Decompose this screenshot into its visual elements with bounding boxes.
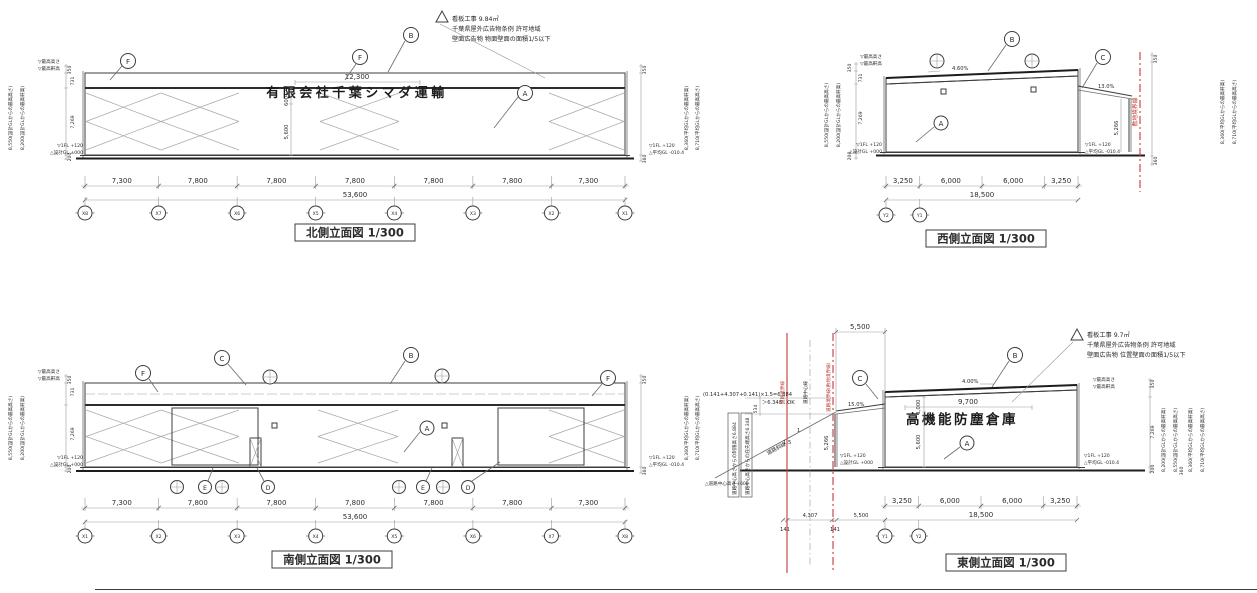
eave-height-marker: ▽最高軒高 <box>38 65 60 72</box>
callout-f1: F <box>136 366 159 393</box>
callout-c: C <box>215 351 247 386</box>
north-heave-label: 8,200(設計GLからの最高軒高) <box>19 86 26 150</box>
east-title: 東側立面図 1/300 <box>946 554 1066 571</box>
svg-text:350: 350 <box>1153 55 1159 64</box>
dim-label: 6,000 <box>1002 497 1022 505</box>
svg-text:7,269: 7,269 <box>1150 425 1156 438</box>
callout-c: C <box>1082 50 1111 89</box>
east-canopy-slope: 15.0% <box>848 402 865 408</box>
dim-label: 6,000 <box>940 497 960 505</box>
east-elevation: 9,700 高機能防塵倉庫 1,000 5,600 4.00% 15.0% 5,… <box>703 323 1206 573</box>
grid-bubble-label: X6 <box>470 534 476 540</box>
east-right-dims: 350 7,269 200 360 8,200(設計GLからの最高軒高) 8,5… <box>1148 378 1206 475</box>
west-canopy-height-dim: 5,266 <box>1114 121 1120 136</box>
svg-text:8,200(設計GLからの最高軒高): 8,200(設計GLからの最高軒高) <box>19 396 26 460</box>
south-left-dims: 8,550(設計GLからの最高高さ) 8,200(設計GLからの最高軒高) 35… <box>7 368 83 473</box>
south-door-2 <box>452 438 463 467</box>
opening-tag-icon <box>393 481 406 494</box>
svg-text:▽最高高さ: ▽最高高さ <box>860 53 882 60</box>
grid-bubble-label: X3 <box>470 211 476 217</box>
svg-text:▽最高軒高: ▽最高軒高 <box>38 375 60 382</box>
opening-tag-icon <box>171 481 184 494</box>
drawing-sheet: 12,300 有限会社千葉シマダ運輸 600 5,600 看板工事 9.84㎡ … <box>0 0 1257 593</box>
north-hmax-label: 8,550(設計GLからの最高高さ) <box>7 86 14 150</box>
grid-bubble-label: X8 <box>82 211 88 217</box>
svg-text:8,360(平均GLからの最高軒高): 8,360(平均GLからの最高軒高) <box>1187 408 1194 472</box>
north-right-dims: 350 360 8,360(平均GLからの最高軒高) 8,710(平均GLからの… <box>639 64 701 163</box>
callout-a: A <box>944 436 974 459</box>
svg-text:350: 350 <box>847 64 853 73</box>
svg-text:8,200(設計GLからの最高軒高): 8,200(設計GLからの最高軒高) <box>1160 408 1167 472</box>
svg-text:360: 360 <box>1153 157 1159 166</box>
opening-tag-icon <box>435 369 449 383</box>
north-title-text: 北側立面図 1/300 <box>306 226 404 240</box>
dim-label: 3,250 <box>1051 177 1071 185</box>
slant-ratio-num: 1 <box>797 428 800 434</box>
north-note-line3: 壁面広告物 物面壁面の面積1/5以下 <box>452 35 551 43</box>
dim-label: 7,300 <box>112 177 132 185</box>
dim-141-right: 141 <box>830 527 840 533</box>
dim-label: 6,000 <box>1003 177 1023 185</box>
dim-label: 7,800 <box>188 499 208 507</box>
opening-tag-icon <box>437 481 450 494</box>
callout-c: C <box>853 371 879 400</box>
dim-label: 7,800 <box>266 177 286 185</box>
grid-bubble-label: X5 <box>313 211 319 217</box>
north-sign-height-dim: 600 <box>284 96 290 106</box>
dim-141-left: 141 <box>780 527 790 533</box>
east-gl-marker-right: △平均GL -010.4 <box>1084 459 1119 466</box>
west-grid-bubbles: Y2Y1 <box>877 199 930 222</box>
max-height-marker: ▽最高高さ <box>38 58 60 65</box>
east-top-dim: 5,500 <box>850 323 870 331</box>
total-dim-label: 53,600 <box>343 513 368 521</box>
svg-text:E: E <box>203 485 207 492</box>
svg-text:8,710(平均GLからの最高高さ): 8,710(平均GLからの最高高さ) <box>694 396 701 460</box>
east-note-line3: 壁面広告物 位置壁面の面積1/5以下 <box>1087 351 1186 359</box>
grid-bubble-label: X7 <box>156 211 162 217</box>
svg-text:7,269: 7,269 <box>70 427 76 440</box>
svg-text:350: 350 <box>642 376 648 385</box>
svg-text:7,269: 7,269 <box>858 111 864 124</box>
svg-text:360: 360 <box>1179 467 1185 476</box>
svg-text:C: C <box>1101 54 1106 62</box>
svg-text:731: 731 <box>858 74 864 83</box>
svg-text:8,710(平均GLからの最高高さ): 8,710(平均GLからの最高高さ) <box>1231 80 1238 144</box>
dim-label: 7,800 <box>345 177 365 185</box>
north-dimension-row: 7,3007,8007,8007,8007,8007,8007,30053,60… <box>81 176 629 202</box>
north-left-dims: 8,550(設計GLからの最高高さ) 8,200(設計GLからの最高軒高) 35… <box>7 58 83 161</box>
dim-label: 7,300 <box>112 499 132 507</box>
west-title: 西側立面図 1/300 <box>926 230 1046 247</box>
dim-label: 3,250 <box>1050 497 1070 505</box>
north-fl-marker-right: ▽1FL +120 <box>649 143 675 149</box>
svg-text:C: C <box>220 355 225 363</box>
north-elevation: 12,300 有限会社千葉シマダ運輸 600 5,600 看板工事 9.84㎡ … <box>7 11 701 241</box>
svg-text:350: 350 <box>67 66 73 75</box>
west-right-dims: 350 360 8,360(平均GLからの最高軒高) 8,710(平均GLからの… <box>1085 52 1238 166</box>
grid-bubble-label: X1 <box>82 534 88 540</box>
grid-bubble-label: Y1 <box>881 534 888 540</box>
west-left-dims: 8,550(設計GLからの最高高さ) 8,200(設計GLからの最高軒高) 35… <box>823 53 882 160</box>
slant-ratio-den: 1.5 <box>783 440 791 446</box>
north-bracing <box>86 93 624 150</box>
svg-text:8,200(設計GLからの最高軒高): 8,200(設計GLからの最高軒高) <box>835 83 842 147</box>
svg-text:8,550(設計GLからの最高高さ): 8,550(設計GLからの最高高さ) <box>823 83 830 147</box>
total-dim-label: 18,500 <box>970 191 995 199</box>
south-gl-marker-left: △設計GL +000 <box>50 461 83 468</box>
callout-b: B <box>388 28 419 73</box>
dim-label: 7,800 <box>424 177 444 185</box>
svg-text:F: F <box>126 58 130 66</box>
slant-ok: ＞6.348…OK <box>762 400 795 406</box>
svg-text:▽最高高さ: ▽最高高さ <box>38 368 60 375</box>
opening-tag-icon <box>930 54 944 68</box>
north-sign-width-dim: 12,300 <box>345 73 370 81</box>
dim-5500: 5,500 <box>854 513 869 519</box>
south-dimension-row: 7,3007,8007,8007,8007,8007,8007,30053,60… <box>81 498 629 524</box>
slant-534-dim: 534 <box>753 405 759 414</box>
south-shutter-door-1 <box>172 408 258 465</box>
east-gl-marker-left: △設計GL +000 <box>840 459 873 466</box>
north-gl-marker-right: △平均GL -010.4 <box>649 149 684 156</box>
svg-text:350: 350 <box>1150 380 1156 389</box>
slant-calc: (0.141+4.307+0.141)×1.5=6.884 <box>703 392 793 398</box>
warning-triangle-icon <box>436 11 448 22</box>
svg-text:350: 350 <box>67 376 73 385</box>
dim-label: 6,000 <box>941 177 961 185</box>
dim-label: 7,800 <box>188 177 208 185</box>
elevation-drawing-canvas: 12,300 有限会社千葉シマダ運輸 600 5,600 看板工事 9.84㎡ … <box>0 0 1257 593</box>
svg-text:A: A <box>965 440 970 448</box>
total-dim-label: 53,600 <box>343 191 368 199</box>
grid-bubble-label: X4 <box>391 211 397 217</box>
north-note-line2: 千葉県屋外広告物条例 許可地域 <box>452 25 541 33</box>
svg-text:B: B <box>409 352 414 360</box>
callout-f1: F <box>110 54 136 81</box>
svg-text:D: D <box>266 485 271 492</box>
north-wall-height-dim: 5,600 <box>284 125 290 140</box>
road-center-label: 道路中心線 <box>802 381 809 404</box>
svg-text:8,710(平均GLからの最高高さ): 8,710(平均GLからの最高高さ) <box>1199 408 1206 472</box>
south-title-text: 南側立面図 1/300 <box>283 553 381 567</box>
svg-text:F: F <box>141 370 145 378</box>
svg-text:8,360(平均GLからの最高軒高): 8,360(平均GLからの最高軒高) <box>683 86 690 150</box>
dim-label: 7,800 <box>502 177 522 185</box>
grid-bubble-label: Y2 <box>915 534 922 540</box>
east-wall <box>885 390 1077 467</box>
east-sign-text: 高機能防塵倉庫 <box>906 411 1018 428</box>
south-vent-1 <box>272 423 277 428</box>
west-boundary-label: 敷地境界線 <box>1131 97 1139 126</box>
dim-label: 7,800 <box>266 499 286 507</box>
callout-a: A <box>404 421 434 452</box>
south-shutter-door-2 <box>498 408 584 465</box>
dim-4307: 4,307 <box>803 513 818 519</box>
svg-text:8,550(設計GLからの最高高さ): 8,550(設計GLからの最高高さ) <box>1172 408 1179 472</box>
south-fl-marker-right: ▽1FL +120 <box>649 455 675 461</box>
north-note-line1: 看板工事 9.84㎡ <box>452 15 499 23</box>
south-gl-marker-right: △平均GL -010.4 <box>649 461 684 468</box>
west-dimension-row: 3,2506,0006,0003,25018,500 <box>882 176 1082 202</box>
south-elevation: F C B F A E D E D 8,550(設計GLからの最高高さ) 8,2… <box>7 348 701 569</box>
south-right-dims: 350 360 8,360(平均GLからの最高軒高) 8,710(平均GLからの… <box>639 374 701 475</box>
west-roof-slope: 4.60% <box>952 66 969 72</box>
west-gl-marker-left: △設計GL +000 <box>849 148 882 155</box>
grid-bubble-label: X3 <box>234 534 240 540</box>
west-title-text: 西側立面図 1/300 <box>937 232 1035 246</box>
svg-text:B: B <box>1010 36 1015 44</box>
eave-height-marker: ▽最高軒高 <box>1093 383 1115 390</box>
svg-text:A: A <box>425 425 430 433</box>
warning-triangle-icon <box>1071 329 1083 340</box>
south-bracing <box>86 410 624 463</box>
grid-bubble-label: X4 <box>313 534 319 540</box>
svg-text:8,710(平均GLからの最高高さ): 8,710(平均GLからの最高高さ) <box>694 86 701 150</box>
north-gl-marker-left: △設計GL ±000 <box>50 149 83 156</box>
east-note-line2: 千葉県屋外広告物条例 許可地域 <box>1087 341 1176 349</box>
svg-text:360: 360 <box>642 155 648 164</box>
north-grid-bubbles: X8X7X6X5X4X3X2X1 <box>76 197 635 220</box>
svg-text:C: C <box>858 375 863 383</box>
east-total-dim: 18,500 <box>969 511 994 519</box>
opening-tag-icon <box>263 370 277 384</box>
south-grid-bubbles: X1X2X3X4X5X6X7X8 <box>76 520 635 543</box>
east-sign-height-dim: 1,000 <box>916 400 922 415</box>
west-fl-marker-left: ▽1FL +120 <box>856 142 882 148</box>
east-road-lines: 道路境界線 道路中心線 道路境界線(敷地境界線) <box>779 333 833 573</box>
svg-text:▽最高軒高: ▽最高軒高 <box>860 60 882 67</box>
north-sign-text: 有限会社千葉シマダ運輸 <box>266 85 448 101</box>
svg-text:7,269: 7,269 <box>70 115 76 128</box>
north-title: 北側立面図 1/300 <box>295 224 415 241</box>
opening-tag-icon <box>216 481 229 494</box>
dim-label: 7,800 <box>345 499 365 507</box>
east-grid-bubbles: Y1Y2 <box>876 520 929 543</box>
east-title-text: 東側立面図 1/300 <box>957 556 1055 570</box>
callout-b: B <box>992 348 1023 388</box>
svg-text:731: 731 <box>70 77 76 86</box>
dim-label: 7,800 <box>502 499 522 507</box>
west-elevation: 4.60% 13.0% 5,266 敷地境界線 B C A 8,550(設計GL… <box>823 32 1238 248</box>
west-fl-marker-right: ▽1FL +120 <box>1085 142 1111 148</box>
grid-bubble-label: X2 <box>156 534 162 540</box>
grid-bubble-label: X2 <box>548 211 554 217</box>
grid-bubble-label: X5 <box>391 534 397 540</box>
east-wall-height-dim: 5,600 <box>916 435 922 450</box>
south-door-1 <box>250 438 261 467</box>
callout-b: B <box>390 348 419 385</box>
west-canopy-slope: 13.0% <box>1098 84 1115 90</box>
svg-text:200: 200 <box>1150 465 1156 474</box>
east-canopy-height-dim: 5,266 <box>824 436 830 451</box>
road-center-height-mark: △道路中心高さ+600 <box>705 480 749 487</box>
west-gl-marker-right: △平均GL -010.4 <box>1085 148 1120 155</box>
south-wall <box>85 405 625 467</box>
callout-b: B <box>988 32 1020 72</box>
grid-bubble-label: X7 <box>548 534 554 540</box>
dim-label: 3,250 <box>892 497 912 505</box>
opening-tag-icon <box>1025 54 1039 68</box>
east-roof-slope: 4.00% <box>962 379 979 385</box>
south-vent-2 <box>442 423 447 428</box>
east-dimension-row: 3,2506,0006,0003,250 <box>881 496 1081 509</box>
grid-bubble-label: Y2 <box>882 213 889 219</box>
svg-text:8,360(平均GLからの最高軒高): 8,360(平均GLからの最高軒高) <box>1219 80 1226 144</box>
north-fl-marker-left: ▽1FL +120 <box>57 143 83 149</box>
grid-bubble-label: Y1 <box>916 213 923 219</box>
grid-bubble-label: X8 <box>622 534 628 540</box>
west-vent-1 <box>941 89 946 94</box>
east-fl-marker-right: ▽1FL +120 <box>1084 453 1110 459</box>
callout-a: A <box>916 116 948 142</box>
svg-text:A: A <box>939 120 944 128</box>
svg-text:8,360(平均GLからの最高軒高): 8,360(平均GLからの最高軒高) <box>683 396 690 460</box>
north-note: 看板工事 9.84㎡ 千葉県屋外広告物条例 許可地域 壁面広告物 物面壁面の面積… <box>436 11 551 78</box>
dim-label: 7,800 <box>424 499 444 507</box>
grid-bubble-label: X1 <box>622 211 628 217</box>
west-wall <box>886 76 1078 152</box>
svg-text:E: E <box>421 485 425 492</box>
south-fl-marker-left: ▽1FL +120 <box>57 455 83 461</box>
dim-label: 7,300 <box>578 177 598 185</box>
svg-text:360: 360 <box>642 467 648 476</box>
south-title: 南側立面図 1/300 <box>272 551 392 568</box>
callout-a: A <box>494 86 533 129</box>
east-note-line1: 看板工事 9.7㎡ <box>1087 331 1131 339</box>
svg-text:F: F <box>606 375 610 383</box>
svg-text:B: B <box>409 32 414 40</box>
dim-label: 7,300 <box>578 499 598 507</box>
svg-text:B: B <box>1013 352 1018 360</box>
east-fl-marker-left: ▽1FL +120 <box>840 453 866 459</box>
dim-label: 3,250 <box>893 177 913 185</box>
svg-text:8,550(設計GLからの最高高さ): 8,550(設計GLからの最高高さ) <box>7 396 14 460</box>
grid-bubble-label: X6 <box>234 211 240 217</box>
west-vent-2 <box>1031 87 1036 92</box>
road-boundary-label-right: 道路境界線(敷地境界線) <box>825 362 832 412</box>
svg-text:731: 731 <box>70 388 76 397</box>
east-sign-width-dim: 9,700 <box>958 398 978 406</box>
svg-text:F: F <box>358 54 362 62</box>
svg-text:A: A <box>523 90 528 98</box>
svg-text:350: 350 <box>642 66 648 75</box>
svg-text:D: D <box>466 485 471 492</box>
max-height-marker: ▽最高高さ <box>1093 376 1115 383</box>
